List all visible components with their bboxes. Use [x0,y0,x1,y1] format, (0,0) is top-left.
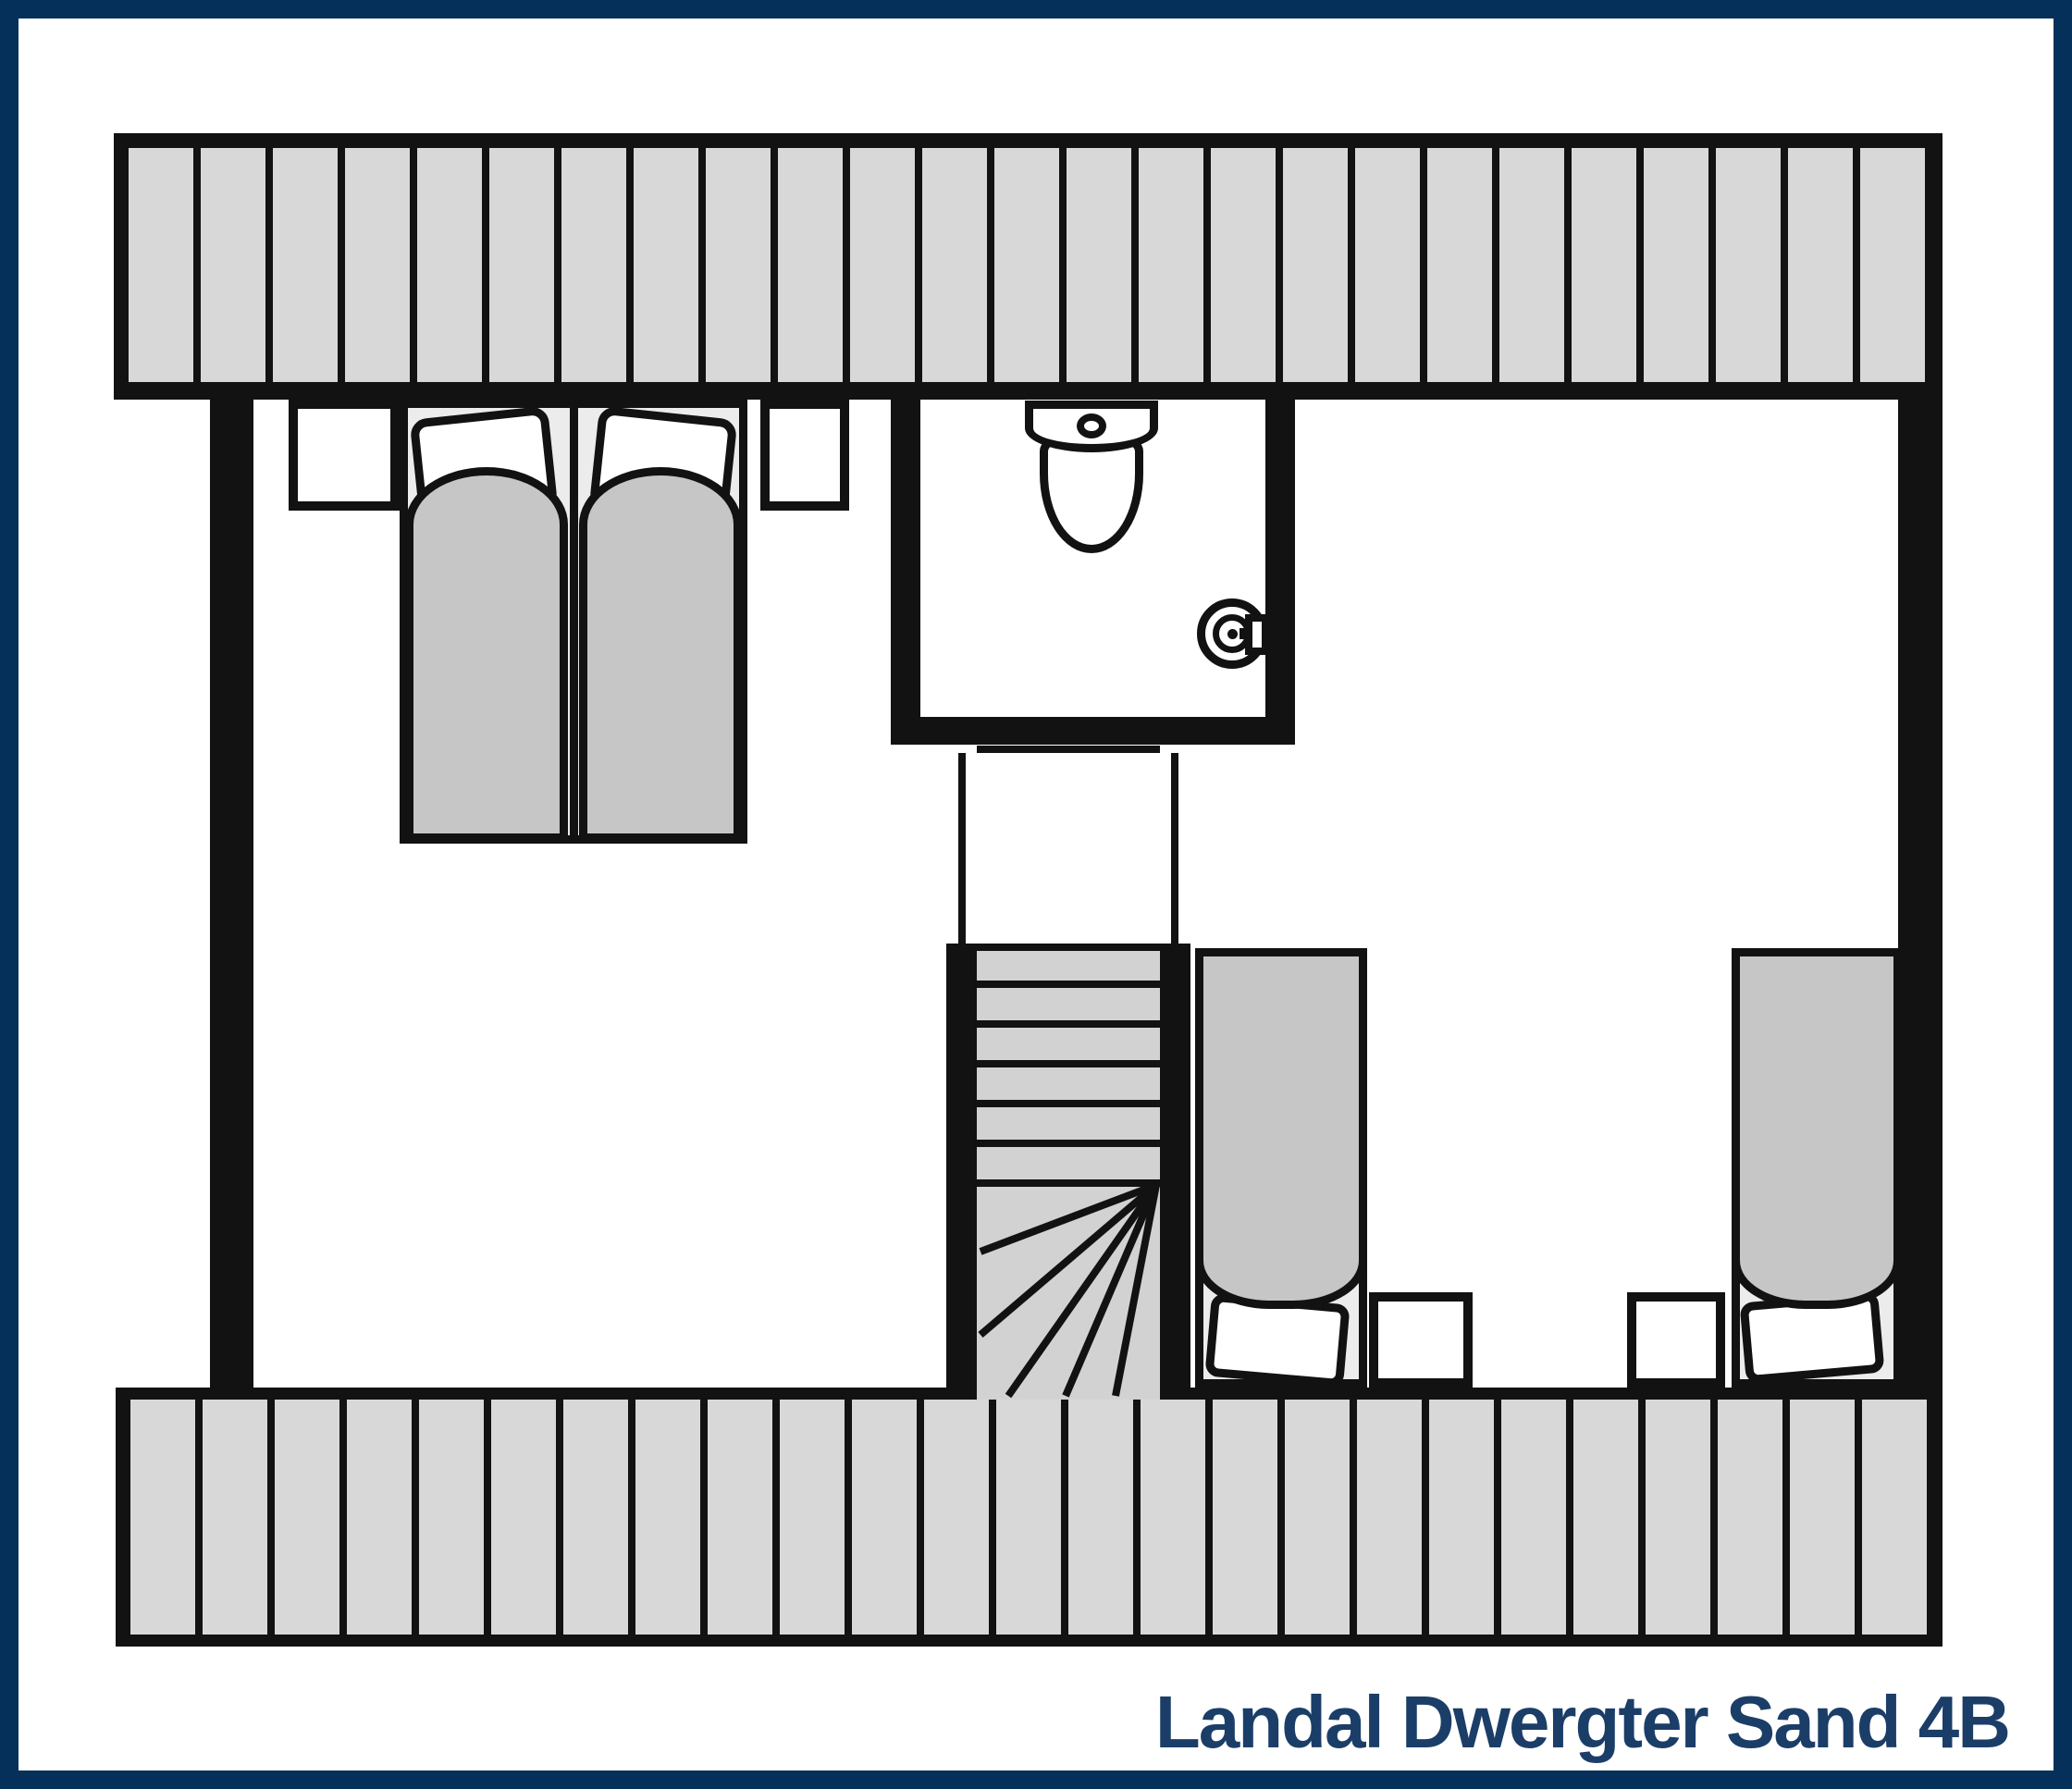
washbasin-faucet-icon [1245,614,1269,655]
stair-tread-line [977,1060,1160,1067]
single-bed-right-duvet [1732,948,1902,1309]
stair-tread-line [977,944,1160,951]
floorplan-page: Landal Dwergter Sand 4B [0,0,2072,1789]
single-bed-left-duvet [1195,948,1367,1309]
roof-hatch-band-bottom [116,1388,1942,1647]
stair-tread-line [977,1100,1160,1107]
plan-title: Landal Dwergter Sand 4B [1155,1682,2009,1763]
toilet-flush-knob-icon [1077,413,1106,438]
wall-right [1898,400,1942,1400]
staircase [977,944,1160,1400]
stair-tread-line [977,1140,1160,1147]
double-bed-center-line [570,400,578,844]
bathroom-wall-right [1265,400,1295,745]
stair-wall-right [1160,944,1190,1400]
roof-hatch-band-top [114,133,1942,400]
toilet-bowl-icon [1040,435,1143,553]
washbasin-drain-dot [1227,629,1238,639]
stair-railing-left [958,753,966,944]
bathroom-wall-left [891,400,920,745]
double-bed-duvet-right [579,467,742,842]
stair-wall-left [946,944,977,1400]
nightstand-b [1627,1292,1725,1388]
stair-tread-line [977,981,1160,988]
stair-tread-line [977,1020,1160,1028]
wall-left [210,400,253,1400]
bathroom-door-line [977,746,1160,753]
stair-railing-right [1171,753,1178,944]
nightstand-right [760,400,849,511]
nightstand-left [289,400,400,511]
double-bed-duvet-left [405,467,568,842]
stair-winder-fan [977,1179,1160,1400]
nightstand-a [1369,1292,1473,1388]
bathroom-wall-bottom [891,717,1295,745]
